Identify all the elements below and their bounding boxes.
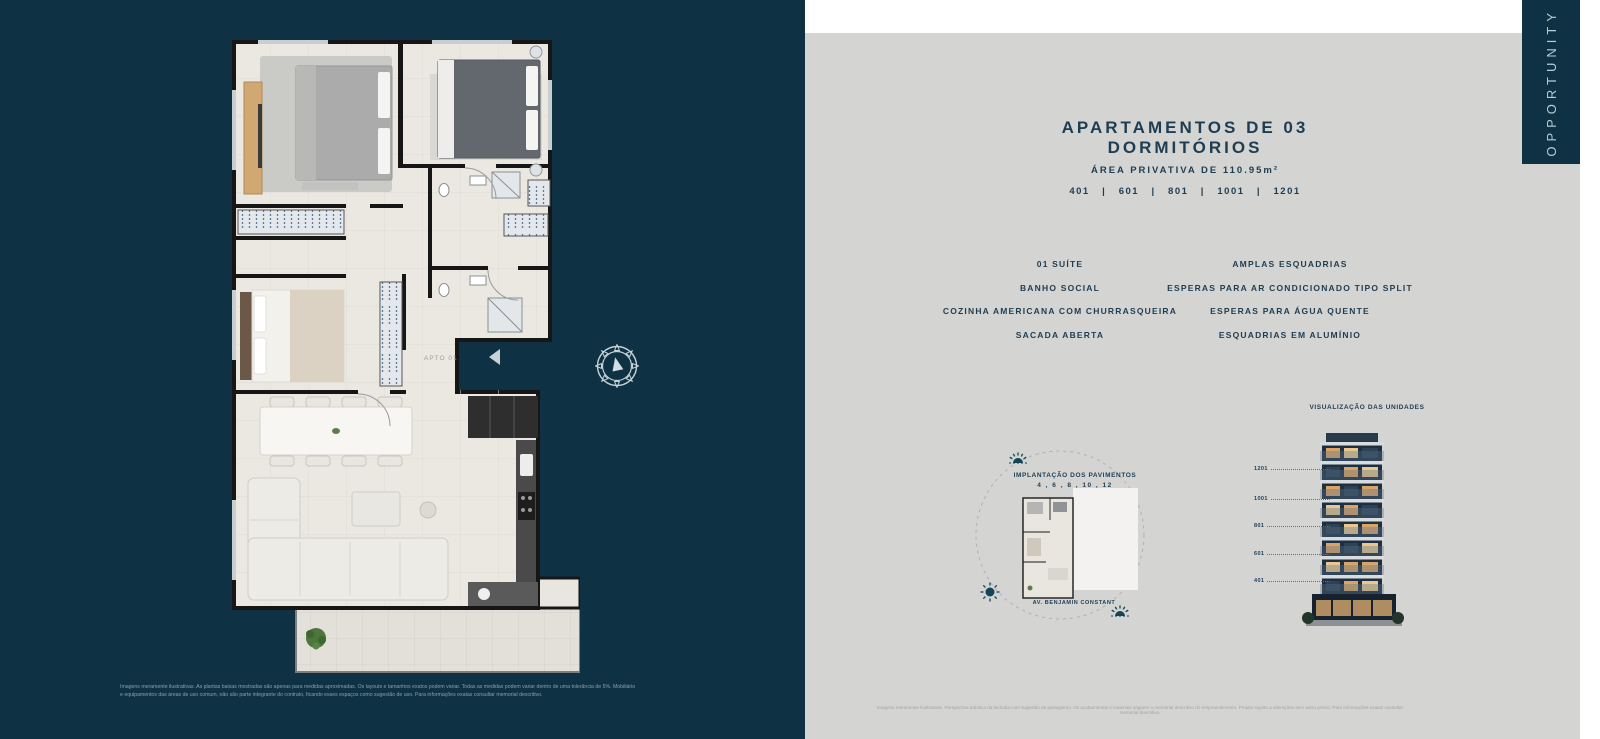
apto-label: APTO 01 (424, 355, 458, 362)
leader-line (1267, 581, 1330, 582)
leader-line (1267, 526, 1330, 527)
feature-item: COZINHA AMERICANA COM CHURRASQUEIRA (935, 306, 1185, 316)
building-elevation-image (1296, 428, 1408, 635)
legal-disclaimer-left: Imagens meramente ilustrativas. As plant… (120, 684, 695, 699)
bedroom-2 (430, 46, 542, 176)
floor-plan-image: APTO 01 (232, 40, 580, 675)
mini-floor-plan (1023, 498, 1073, 598)
unit-leader: 601 (1254, 551, 1330, 557)
brochure-page: APTO 01 Imagens meramente ilustrativas. … (0, 0, 1600, 739)
site-plan-diagram (950, 440, 1150, 625)
title-block: APARTAMENTOS DE 03 DORMITÓRIOS ÁREA PRIV… (985, 118, 1385, 197)
units-viz-title: VISUALIZAÇÃO DAS UNIDADES (1302, 404, 1432, 411)
leader-line (1271, 499, 1330, 500)
unit-leader: 1201 (1254, 466, 1330, 472)
tree (1302, 612, 1314, 624)
sunset-icon (1111, 606, 1129, 617)
left-panel: APTO 01 Imagens meramente ilustrativas. … (0, 0, 805, 739)
sunrise-icon (1009, 453, 1027, 464)
feature-item: SACADA ABERTA (935, 330, 1185, 340)
disclaimer-line-1: Imagens meramente ilustrativas. As plant… (120, 684, 695, 692)
street-label: AV. BENJAMIN CONSTANT (998, 600, 1150, 606)
feature-item: ESQUADRIAS EM ALUMÍNIO (1160, 330, 1420, 340)
feature-item: 01 SUÍTE (935, 259, 1185, 269)
unit-leader: 1001 (1254, 496, 1330, 502)
legal-disclaimer-right: Imagens meramente ilustrativas. Perspect… (870, 705, 1410, 715)
bedroom-3 (240, 290, 344, 382)
building-floors (1320, 442, 1384, 594)
suite-bedroom (244, 56, 392, 194)
feature-item: ESPERAS PARA ÁGUA QUENTE (1160, 306, 1420, 316)
service-area (538, 578, 580, 608)
unit-label: 801 (1254, 523, 1264, 529)
leader-line (1267, 554, 1330, 555)
unit-label: 601 (1254, 551, 1264, 557)
compass-icon (595, 344, 639, 388)
unit-label: 401 (1254, 578, 1264, 584)
unit-label: 1201 (1254, 466, 1268, 472)
site-plan-title: IMPLANTAÇÃO DOS PAVIMENTOS (995, 472, 1155, 479)
page-title: APARTAMENTOS DE 03 DORMITÓRIOS (985, 118, 1385, 158)
tree (1392, 612, 1404, 624)
feature-item: AMPLAS ESQUADRIAS (1160, 259, 1420, 269)
site-plan-floors: 4 , 6 , 8 , 10 , 12 (995, 482, 1155, 489)
balcony (296, 608, 580, 672)
disclaimer-line-2: e equipamentos das áreas de uso comum, n… (120, 692, 695, 700)
sun-icon (981, 583, 1000, 602)
unit-numbers-line: 401 | 601 | 801 | 1001 | 1201 (985, 186, 1385, 197)
feature-item: BANHO SOCIAL (935, 283, 1185, 293)
leader-line (1271, 469, 1330, 470)
feature-item: ESPERAS PARA AR CONDICIONADO TIPO SPLIT (1160, 283, 1420, 293)
brand-vertical-label: OPPORTUNITY (1544, 8, 1559, 157)
unit-label: 1001 (1254, 496, 1268, 502)
entry-arrow-icon (489, 349, 500, 365)
area-subtitle: ÁREA PRIVATIVA DE 110.95m² (985, 165, 1385, 176)
brand-tab: OPPORTUNITY (1522, 0, 1580, 164)
unit-leader: 801 (1254, 523, 1330, 529)
unit-leader: 401 (1254, 578, 1330, 584)
